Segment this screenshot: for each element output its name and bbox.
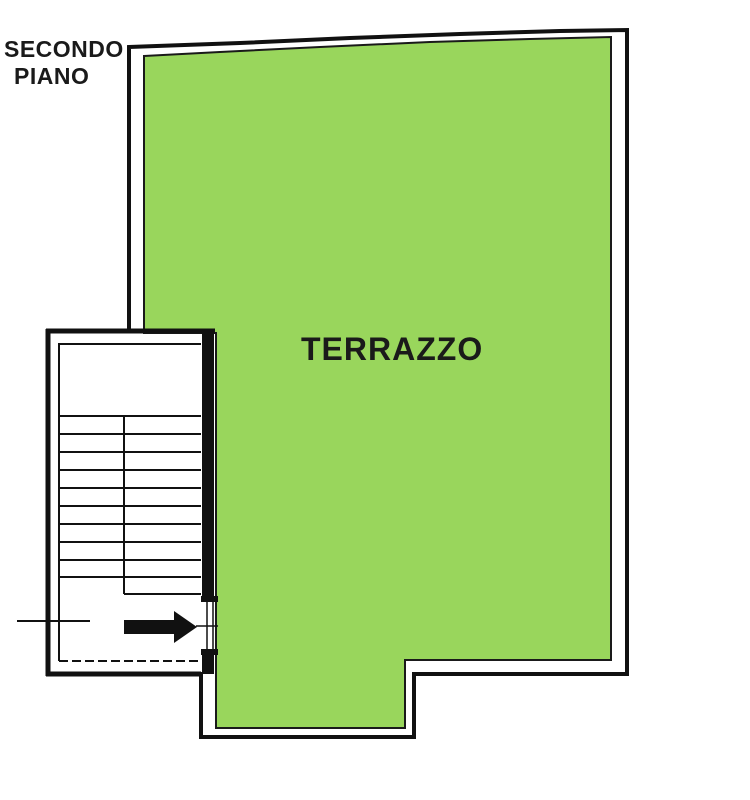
floor-label-line2: PIANO	[14, 63, 124, 90]
stair-inner-boundary	[59, 344, 201, 661]
floor-plan: SECONDO PIANO TERRAZZO	[0, 0, 750, 800]
floor-label: SECONDO PIANO	[4, 36, 124, 90]
floor-plan-drawing	[0, 0, 750, 800]
direction-arrow	[124, 611, 197, 643]
room-label: TERRAZZO	[301, 331, 483, 368]
terrace-area	[144, 37, 611, 728]
wall-segment-lower	[202, 653, 214, 674]
door-opening	[196, 602, 218, 649]
staircase	[59, 344, 201, 661]
door-jamb-top	[201, 596, 218, 602]
wall-segment-upper	[202, 331, 214, 598]
floor-label-line1: SECONDO	[4, 36, 124, 63]
